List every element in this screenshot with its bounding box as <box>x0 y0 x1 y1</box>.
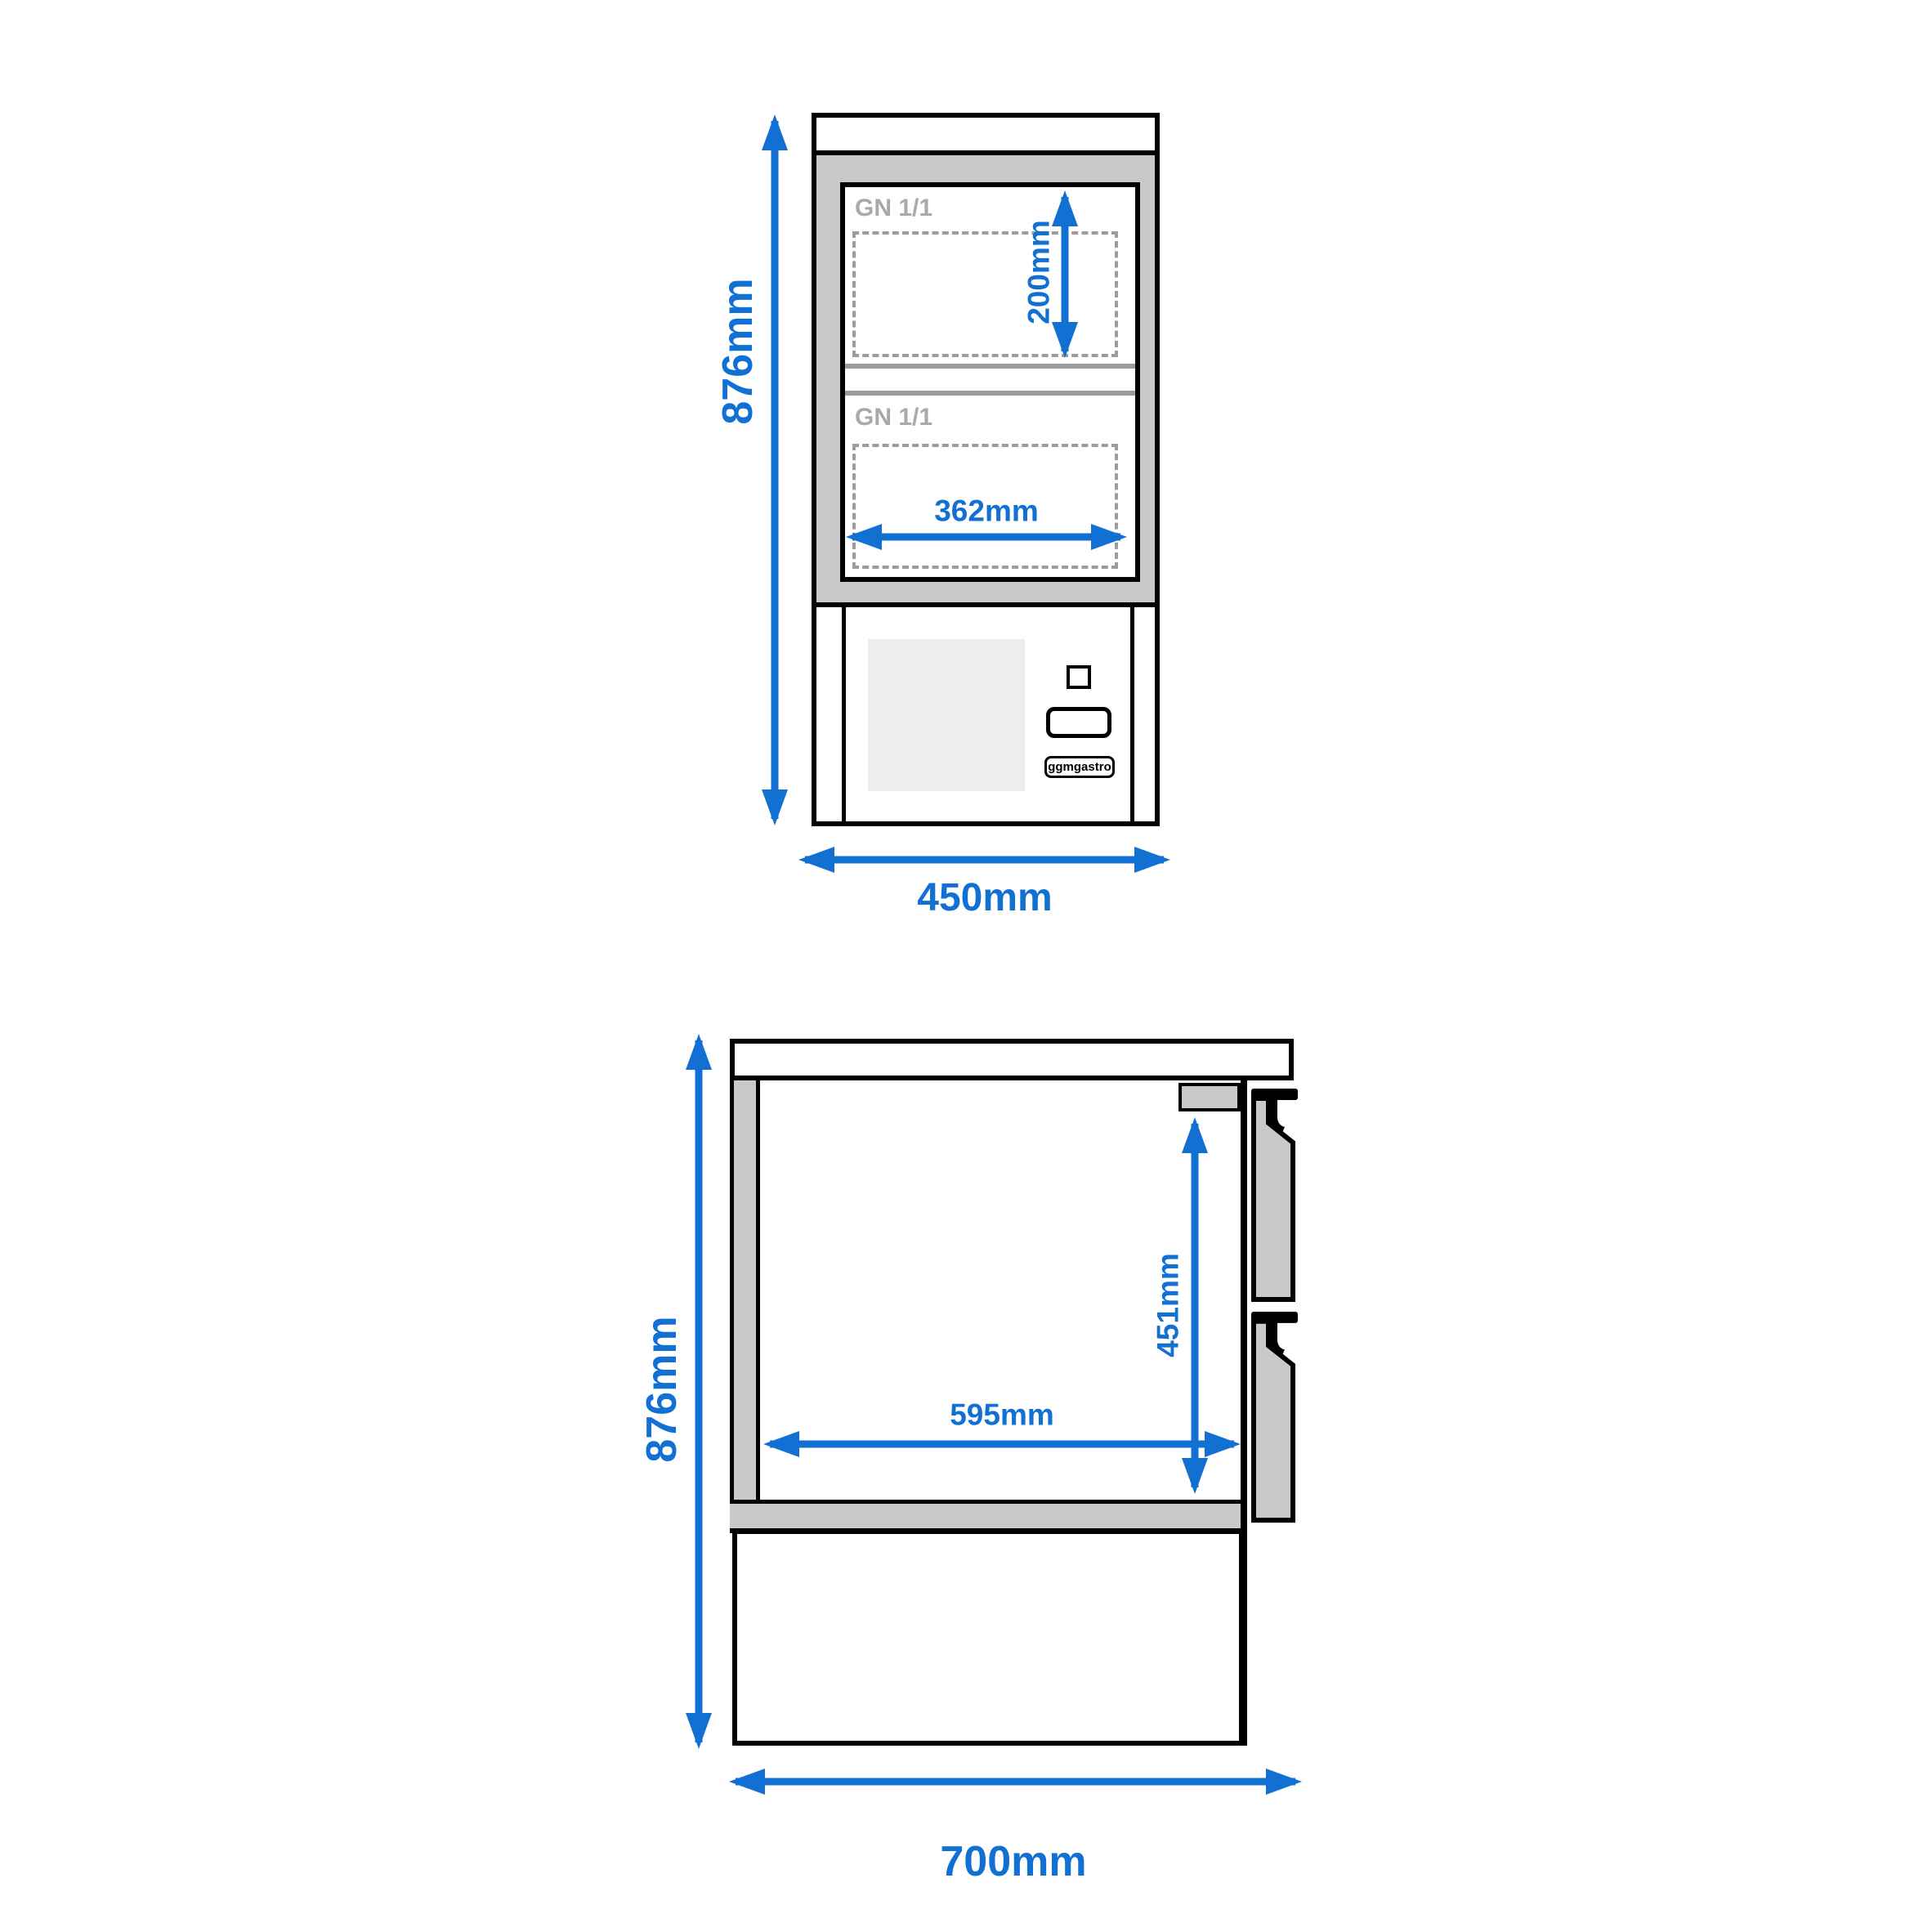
drawer-top-cap <box>1251 1089 1298 1100</box>
shelf-divider-lower-line <box>845 391 1135 396</box>
control-panel <box>868 639 1025 791</box>
dim-arrow-gn-width <box>846 524 1127 550</box>
base-trim-line-right <box>1130 607 1134 821</box>
arrow-shaft <box>805 856 1164 864</box>
dim-label-inner-height: 451mm <box>1153 1253 1183 1357</box>
arrow-shaft <box>852 534 1120 541</box>
arrowhead-up-icon <box>1052 190 1078 226</box>
arrowhead-down-icon <box>1052 322 1078 358</box>
arrowhead-left-icon <box>763 1431 799 1457</box>
arrow-shaft <box>695 1040 703 1742</box>
top-corner-block <box>1178 1083 1241 1111</box>
arrowhead-up-icon <box>686 1034 712 1070</box>
drawer-front-upper <box>1250 1087 1299 1308</box>
dim-label-height-front: 876mm <box>717 278 759 424</box>
gn-size-label-bottom: GN 1/1 <box>855 404 932 432</box>
front-case-bottom-line <box>812 602 1160 607</box>
dim-label-gn-height: 200mm <box>1024 220 1054 324</box>
arrowhead-left-icon <box>729 1769 765 1795</box>
dim-arrow-height-front <box>762 114 788 825</box>
shelf-divider-upper-line <box>845 364 1135 369</box>
gn-size-label-top: GN 1/1 <box>855 195 932 222</box>
gn-pan-outline-top <box>852 231 1118 357</box>
arrowhead-down-icon <box>1182 1458 1208 1494</box>
appliance-dimension-drawing: GN 1/1 200mm GN 1/1 362mm ggmgastro <box>0 0 1932 1932</box>
arrowhead-left-icon <box>798 847 834 873</box>
arrowhead-right-icon <box>1134 847 1170 873</box>
worktop <box>730 1039 1294 1080</box>
dim-label-inner-depth: 595mm <box>950 1400 1054 1430</box>
drawer-front-lower <box>1250 1310 1299 1528</box>
base-compartment <box>732 1529 1244 1746</box>
dim-arrow-inner-depth <box>763 1431 1241 1457</box>
arrowhead-left-icon <box>846 524 882 550</box>
arrow-shaft <box>736 1778 1295 1786</box>
display-readout <box>1046 707 1111 738</box>
rear-wall <box>730 1080 760 1504</box>
drawer-top-cap <box>1251 1312 1298 1323</box>
arrow-shaft <box>770 1441 1234 1448</box>
chamber-floor <box>730 1500 1244 1533</box>
arrowhead-right-icon <box>1205 1431 1241 1457</box>
brand-logo: ggmgastro <box>1044 756 1115 778</box>
arrowhead-right-icon <box>1091 524 1127 550</box>
arrowhead-up-icon <box>762 114 788 150</box>
dim-label-width-front: 450mm <box>917 879 1052 918</box>
base-trim-line-left <box>842 607 846 821</box>
dim-label-depth: 700mm <box>940 1840 1086 1883</box>
dim-label-height-side: 876mm <box>641 1316 683 1462</box>
arrowhead-right-icon <box>1266 1769 1302 1795</box>
dim-arrow-depth <box>729 1769 1302 1795</box>
dim-arrow-gn-height <box>1052 190 1078 358</box>
dim-label-gn-width: 362mm <box>934 496 1039 526</box>
arrow-shaft <box>771 121 779 819</box>
arrowhead-down-icon <box>686 1713 712 1749</box>
power-button <box>1067 665 1091 689</box>
arrowhead-up-icon <box>1182 1117 1208 1153</box>
arrowhead-down-icon <box>762 789 788 825</box>
dim-arrow-height-side <box>686 1034 712 1749</box>
dim-arrow-width-front <box>798 847 1170 873</box>
front-top-rim <box>812 113 1160 155</box>
